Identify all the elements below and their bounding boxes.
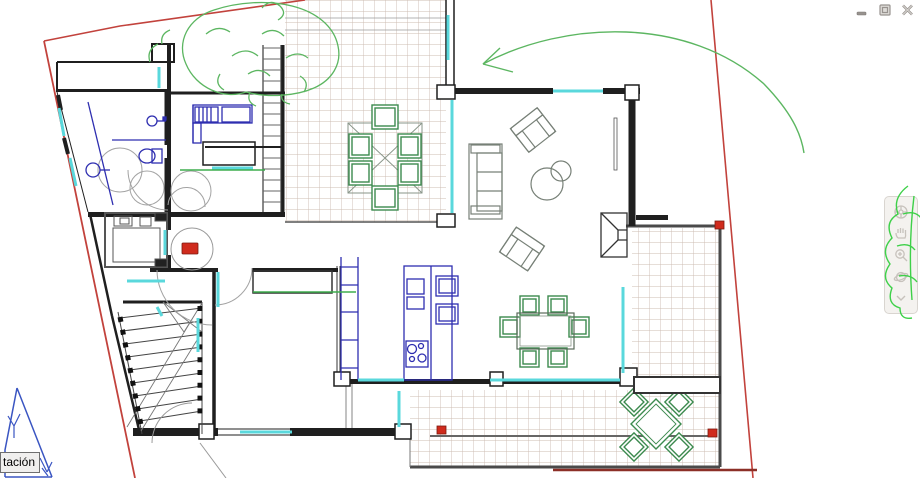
terrace-planter[interactable] [634, 377, 720, 393]
kitchen-fixtures[interactable] [341, 257, 458, 380]
round-table-selected[interactable] [171, 228, 213, 270]
staircase[interactable] [118, 302, 226, 478]
window-restore-icon [878, 4, 892, 16]
window-minimize-icon [855, 4, 869, 16]
side-steps[interactable] [263, 45, 281, 212]
bathroom-fixtures[interactable] [86, 102, 166, 205]
entry-counter[interactable] [253, 271, 332, 293]
minimize-button[interactable] [854, 3, 870, 16]
elevator-core[interactable] [105, 213, 167, 267]
window-close-icon [901, 4, 915, 16]
close-button[interactable] [900, 3, 916, 16]
drawing-canvas[interactable] [0, 0, 920, 478]
living-room-furniture[interactable] [469, 108, 617, 271]
terrace-paving-hatch[interactable] [285, 0, 720, 467]
window-controls [854, 3, 916, 16]
tooltip-text: tación [3, 455, 35, 469]
restore-button[interactable] [877, 3, 893, 16]
cursor-tooltip: tación [0, 452, 40, 473]
cad-application-window: tación [0, 0, 920, 478]
tree-right[interactable] [885, 186, 920, 318]
appliance-cabinet[interactable] [193, 105, 252, 143]
dining-set[interactable] [500, 296, 589, 367]
fireplace[interactable] [601, 213, 627, 257]
